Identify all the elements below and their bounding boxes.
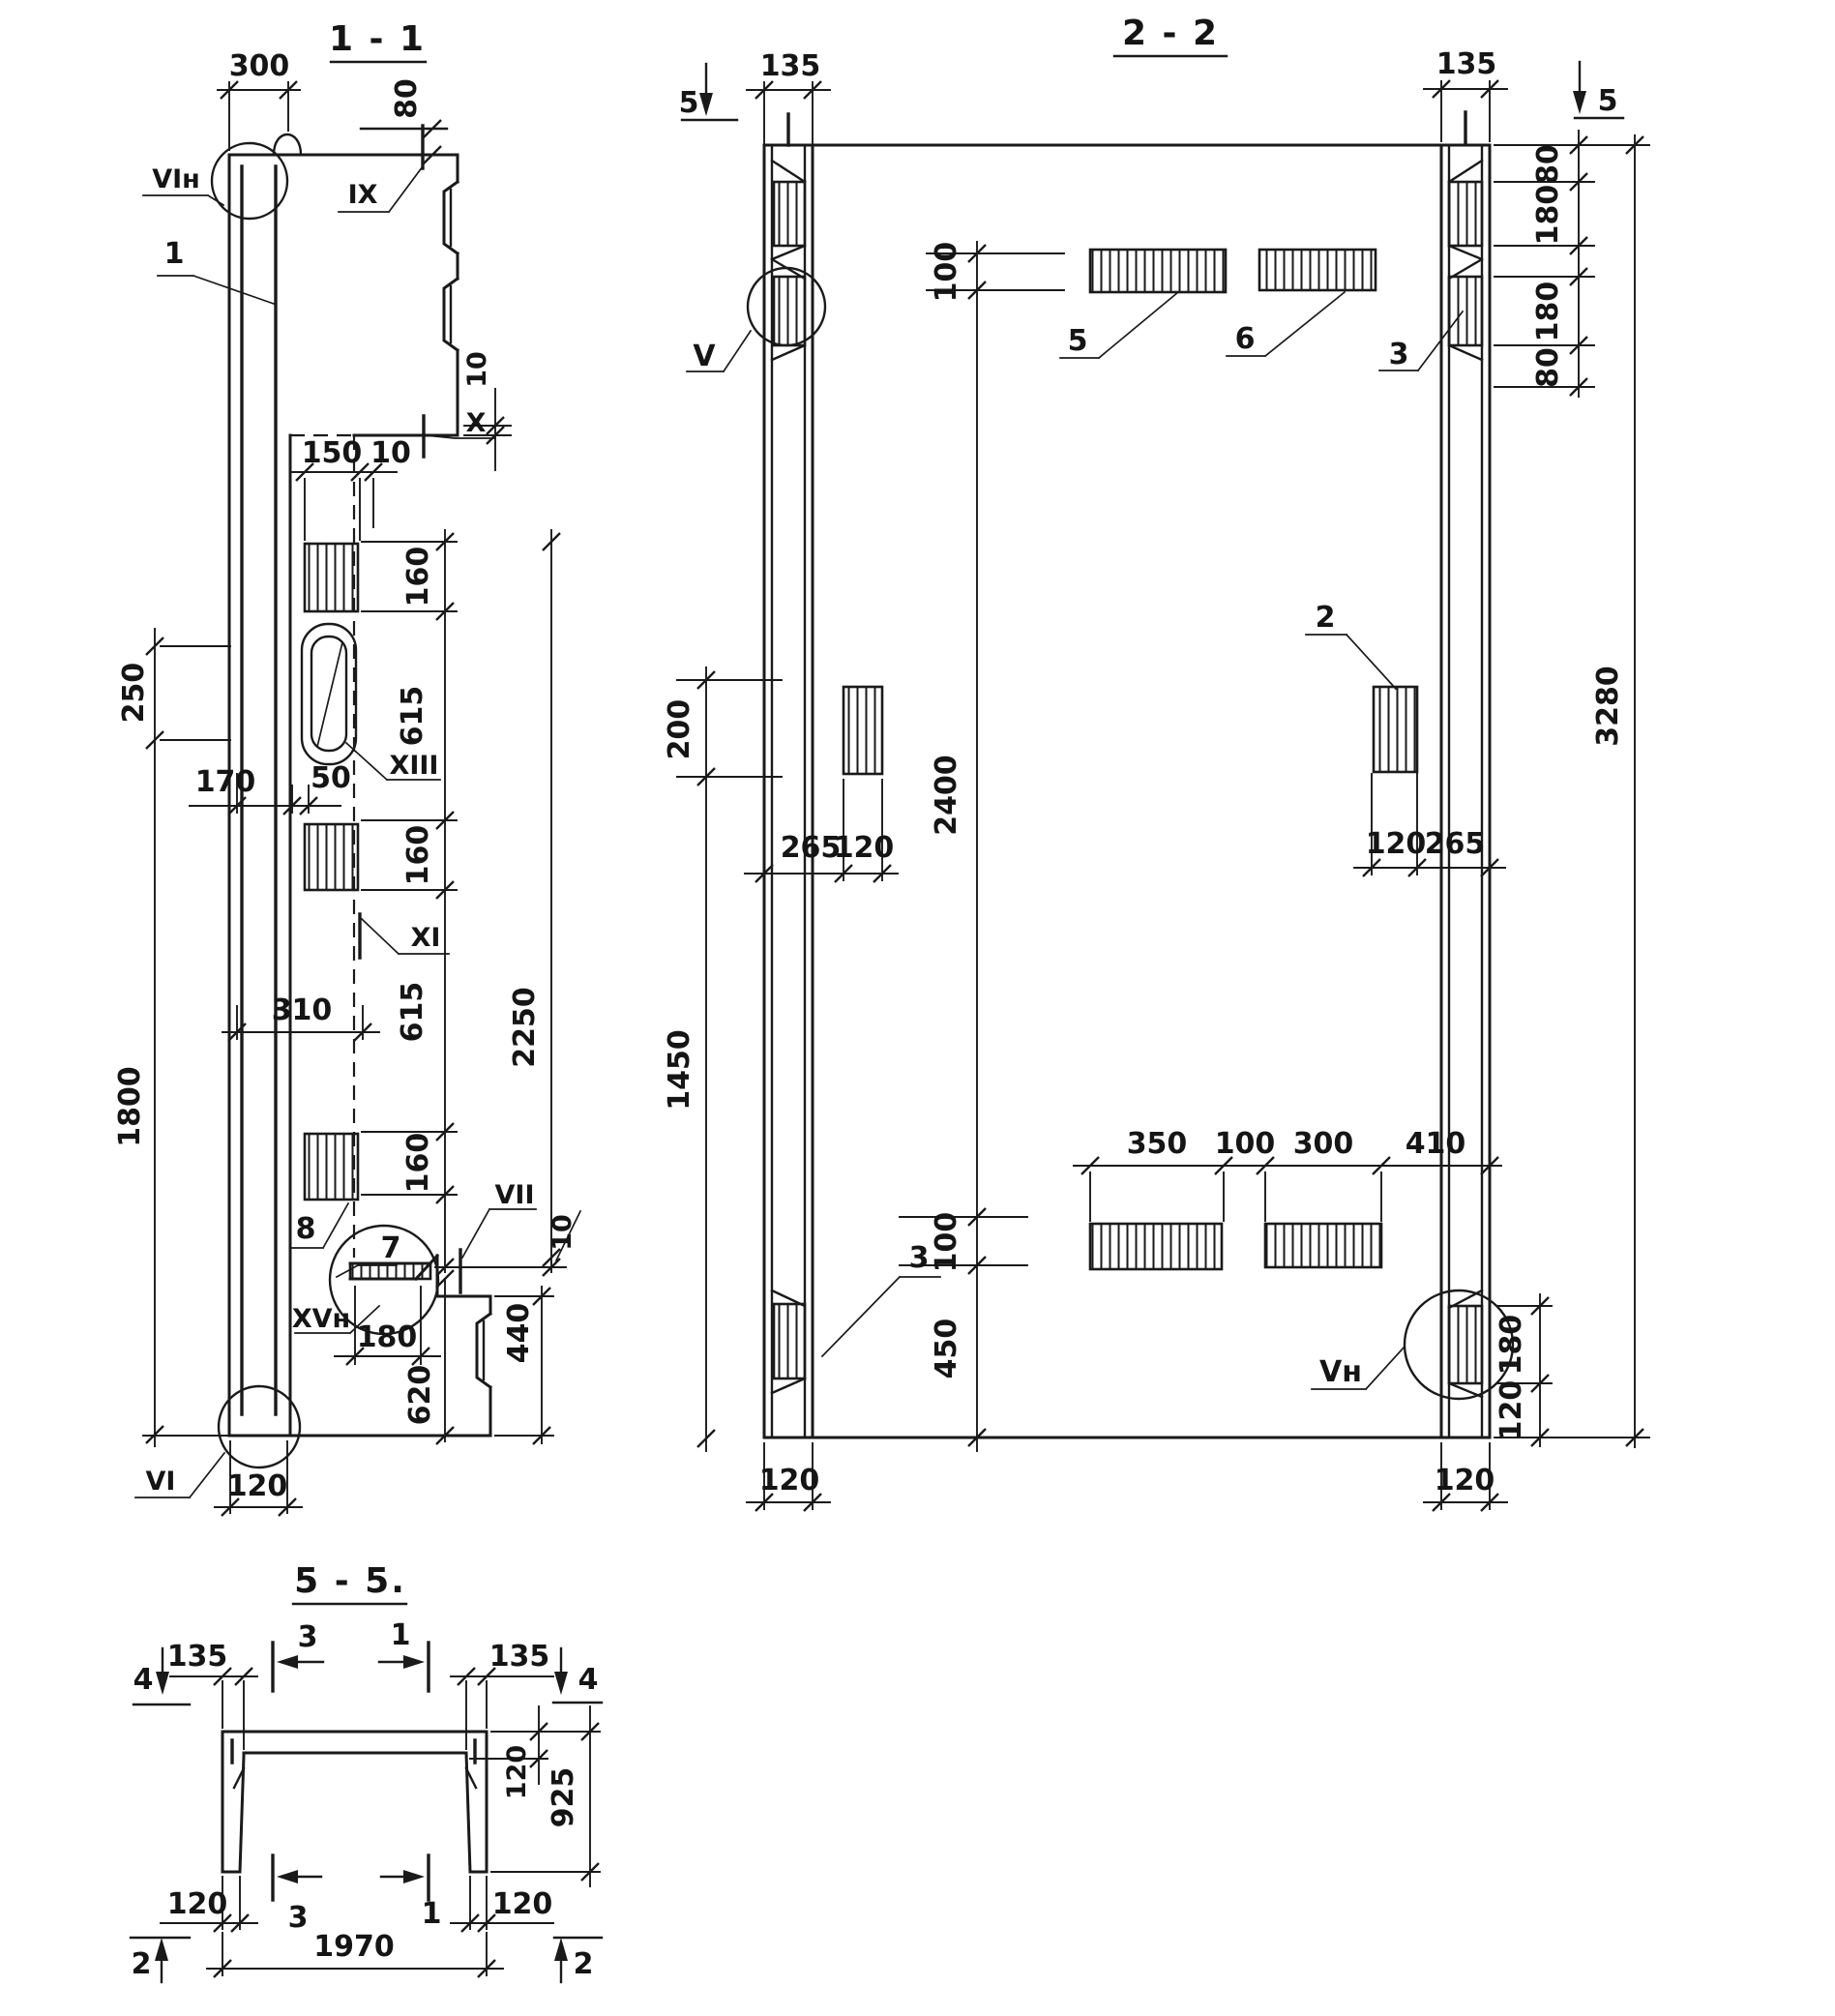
col-embed xyxy=(1449,277,1482,345)
slot-inner xyxy=(311,637,346,751)
section-1-1: 1 - 1 xyxy=(113,19,580,1516)
chamfer-diagonals xyxy=(772,161,1482,1397)
dim-100-top: 100 xyxy=(930,242,963,303)
dim-120-foot-right: 120 xyxy=(492,1887,553,1921)
dim-160a: 160 xyxy=(401,547,435,608)
dim-80a: 80 xyxy=(1531,144,1565,185)
dim-10-ledge: 10 xyxy=(548,1214,577,1251)
section-2-2: 2 - 2 xyxy=(663,14,1649,1511)
dim-1800: 1800 xyxy=(113,1066,147,1147)
section-title: 2 - 2 xyxy=(1122,14,1219,53)
detail-label-v: V xyxy=(693,340,716,373)
wall-outline xyxy=(229,155,490,1436)
callout-8: 8 xyxy=(296,1212,316,1246)
col-embed xyxy=(774,1304,805,1379)
marker-5-right: 5 xyxy=(1598,84,1618,118)
detail-label-x: X xyxy=(466,408,487,438)
marker-2-right: 2 xyxy=(574,1947,594,1981)
section-title: 1 - 1 xyxy=(329,19,426,59)
dim-615a: 615 xyxy=(396,686,429,747)
haunch-lines xyxy=(234,1768,476,1788)
lifting-loop xyxy=(274,134,301,155)
dim-620: 620 xyxy=(403,1365,437,1426)
col-embed xyxy=(1449,1306,1482,1383)
slot-shade xyxy=(317,642,342,747)
dim-50: 50 xyxy=(311,761,351,795)
col-embed xyxy=(1449,182,1482,246)
dim-615b: 615 xyxy=(396,982,429,1043)
dim-100-b: 100 xyxy=(1215,1127,1276,1161)
anchor-bars xyxy=(788,112,1465,145)
dim-200: 200 xyxy=(663,699,696,760)
slot-outer xyxy=(302,624,356,764)
dim-120-foot-left: 120 xyxy=(167,1887,228,1921)
dim-1970: 1970 xyxy=(313,1930,395,1964)
dim-10-top: 10 xyxy=(462,351,492,388)
callout-3-top: 3 xyxy=(1389,338,1409,371)
callout-6: 6 xyxy=(1235,322,1256,356)
dim-120-foot-left: 120 xyxy=(759,1464,820,1497)
arrow-label-3-top: 3 xyxy=(298,1620,318,1654)
channel-outline xyxy=(222,1732,487,1872)
dim-180-rl: 180 xyxy=(1495,1315,1528,1376)
dim-310: 310 xyxy=(272,993,333,1027)
dim-450: 450 xyxy=(930,1319,963,1379)
dim-2400: 2400 xyxy=(930,755,963,836)
embed-plate xyxy=(305,544,358,611)
detail-label-vi-n: VIн xyxy=(152,164,200,194)
callout-5: 5 xyxy=(1068,324,1088,358)
marker-2-left: 2 xyxy=(132,1947,152,1981)
embed-plate-5 xyxy=(1090,250,1226,292)
dim-300: 300 xyxy=(1293,1127,1354,1161)
dim-925: 925 xyxy=(547,1767,580,1828)
dim-80b: 80 xyxy=(1531,347,1565,388)
section-arrow-3-bottom xyxy=(273,1855,321,1900)
dim-120: 120 xyxy=(227,1469,288,1503)
dim-440: 440 xyxy=(502,1303,536,1364)
dim-180b: 180 xyxy=(1531,282,1565,342)
section-title: 5 - 5. xyxy=(294,1561,406,1601)
dim-180a: 180 xyxy=(1531,185,1565,246)
dim-ticks xyxy=(214,1668,599,1977)
marker-5-left: 5 xyxy=(679,86,699,120)
dim-120-left: 120 xyxy=(834,831,895,865)
arrow-label-1-top: 1 xyxy=(391,1618,411,1652)
col-embed xyxy=(774,277,805,345)
callout-1: 1 xyxy=(164,237,185,271)
detail-label-xiii: XIII xyxy=(390,751,439,781)
dim-300: 300 xyxy=(229,49,290,83)
dim-135-left: 135 xyxy=(167,1640,228,1674)
dim-120-slab: 120 xyxy=(502,1745,532,1799)
dim-ticks xyxy=(697,80,1643,1511)
embed-plate xyxy=(305,1134,358,1200)
dim-135-right: 135 xyxy=(489,1640,550,1674)
embed-plate xyxy=(305,824,358,890)
section-5-5: 5 - 5. xyxy=(131,1561,602,1982)
technical-drawing-svg: 1 - 1 xyxy=(0,0,1835,2016)
dim-80: 80 xyxy=(390,78,424,119)
embed-plate-low xyxy=(1265,1224,1381,1267)
dim-250: 250 xyxy=(117,663,151,724)
arrow-label-3-bottom: 3 xyxy=(288,1901,309,1935)
dim-3280: 3280 xyxy=(1591,666,1625,747)
callout-7: 7 xyxy=(381,1231,401,1265)
detail-label-xi: XI xyxy=(411,923,441,953)
dim-170: 170 xyxy=(195,765,256,799)
col-embed xyxy=(774,182,805,246)
section-arrow-1-bottom xyxy=(381,1855,429,1900)
marker-4-left: 4 xyxy=(133,1663,154,1697)
embed-plate-low xyxy=(1090,1224,1222,1269)
dim-265-left: 265 xyxy=(781,831,842,865)
dim-120-rl: 120 xyxy=(1495,1380,1528,1441)
detail-label-vii: VII xyxy=(495,1180,535,1210)
drawing-sheet: 1 - 1 xyxy=(0,0,1835,2016)
detail-label-vi: VI xyxy=(146,1467,176,1497)
dim-410: 410 xyxy=(1406,1127,1466,1161)
callout-2: 2 xyxy=(1316,601,1336,635)
dim-180: 180 xyxy=(357,1320,418,1354)
dim-100-low: 100 xyxy=(930,1212,963,1273)
dim-135-left: 135 xyxy=(760,49,821,83)
dim-150: 150 xyxy=(302,436,363,470)
dim-1450: 1450 xyxy=(663,1029,696,1111)
dim-120-foot-right: 120 xyxy=(1435,1464,1495,1497)
callout-3-low: 3 xyxy=(909,1241,930,1275)
marker-4-right: 4 xyxy=(578,1663,599,1697)
dim-160b: 160 xyxy=(401,825,435,886)
embed-plate-6 xyxy=(1259,250,1376,290)
dim-160c: 160 xyxy=(401,1133,435,1194)
detail-label-xv-n: XVн xyxy=(292,1304,350,1334)
arrow-label-1-bottom: 1 xyxy=(422,1897,442,1931)
dim-265-right: 265 xyxy=(1425,827,1486,861)
dim-350: 350 xyxy=(1127,1127,1188,1161)
embed-plate-mid-left xyxy=(844,687,882,774)
dim-135-right: 135 xyxy=(1436,47,1497,81)
dim-2250: 2250 xyxy=(508,987,542,1068)
detail-label-v-n: Vн xyxy=(1319,1355,1362,1389)
dim-120-right: 120 xyxy=(1366,827,1427,861)
embed-plate-2 xyxy=(1374,687,1417,772)
dim-10-gap: 10 xyxy=(370,436,411,470)
detail-label-ix: IX xyxy=(348,180,378,210)
